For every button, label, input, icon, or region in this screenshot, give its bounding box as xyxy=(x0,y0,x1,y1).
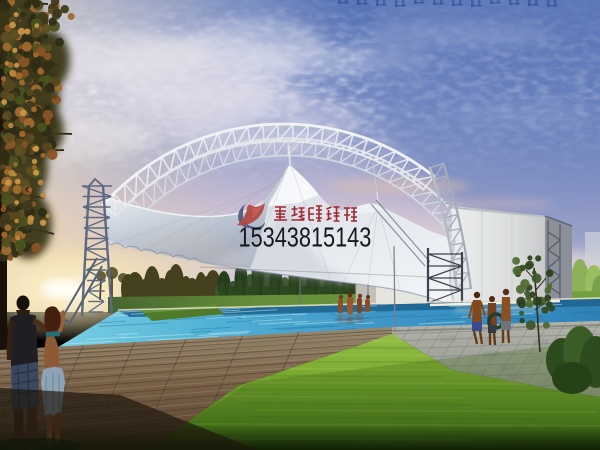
svg-text:15343815143: 15343815143 xyxy=(239,223,372,253)
